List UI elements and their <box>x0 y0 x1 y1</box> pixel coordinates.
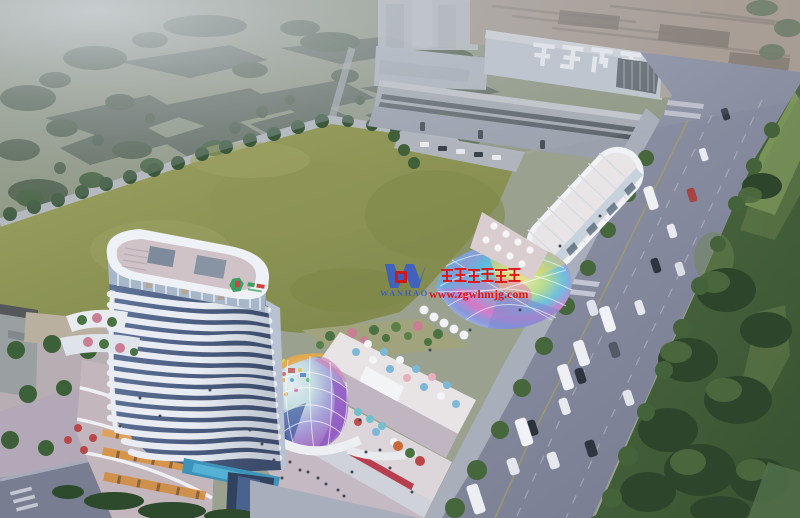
svg-text:WANHAO: WANHAO <box>380 288 429 298</box>
svg-text:www.zgwhmjg.com: www.zgwhmjg.com <box>429 287 528 301</box>
